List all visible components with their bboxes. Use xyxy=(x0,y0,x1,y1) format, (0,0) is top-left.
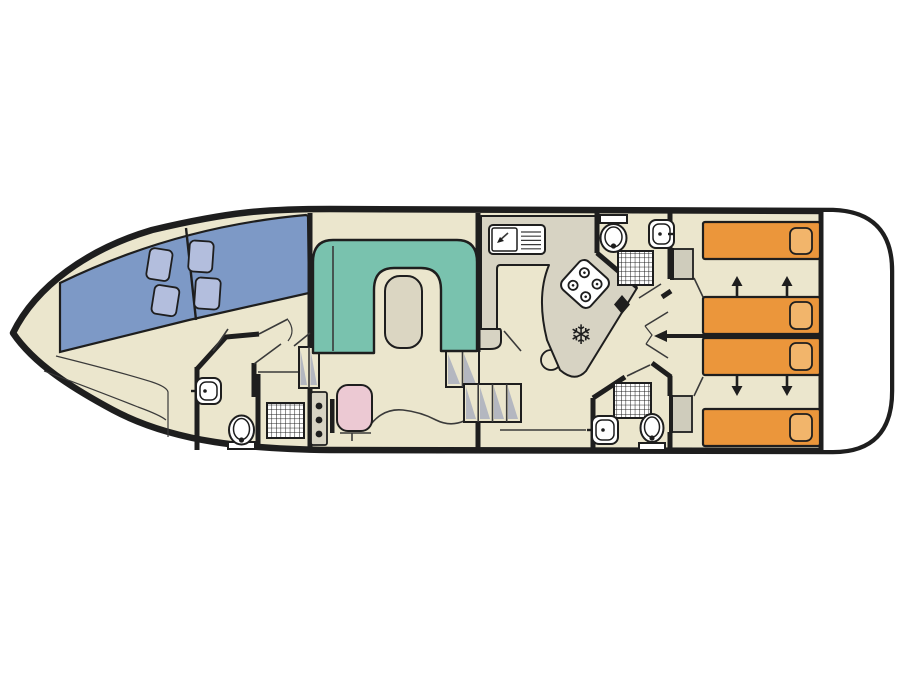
saloon-stairs-upper-icon xyxy=(446,351,479,387)
helm-lever xyxy=(330,399,335,433)
pillow xyxy=(146,247,174,281)
pillow xyxy=(151,284,180,317)
aft-toilet-top-icon xyxy=(600,215,627,252)
bed-sliding-lower xyxy=(703,338,820,375)
galley-sink-icon xyxy=(489,225,545,254)
bed-pillow xyxy=(790,302,812,329)
floor-plan-image: ❄ xyxy=(0,0,901,676)
wardrobe-bottom xyxy=(671,395,692,433)
bed-pillow xyxy=(790,414,812,441)
aft-toilet-bottom-icon xyxy=(639,414,665,450)
pillow xyxy=(188,240,214,273)
fore-shower-grid-icon xyxy=(267,403,304,438)
bed-single-bottom xyxy=(703,409,820,446)
aft-shower-top-grid-icon xyxy=(618,251,653,285)
stern-deck xyxy=(821,212,890,450)
pillow xyxy=(194,277,221,310)
bed-pillow xyxy=(790,228,812,254)
fore-toilet-icon xyxy=(228,416,255,450)
wardrobe-top xyxy=(672,248,693,280)
counter-end xyxy=(479,329,501,349)
aft-washbasin-top-icon xyxy=(649,220,674,248)
aft-shower-bottom-grid-icon xyxy=(614,383,651,418)
bed-single-top xyxy=(703,222,820,259)
saloon xyxy=(313,240,477,353)
helm-seat xyxy=(337,385,372,431)
aft-washbasin-bottom-icon xyxy=(587,416,618,444)
fridge-snowflake-icon: ❄ xyxy=(570,320,593,351)
saloon-stairs-lower-icon xyxy=(464,384,521,422)
dinette-table xyxy=(385,276,422,348)
bed-pillow xyxy=(790,343,812,370)
bed-sliding-upper xyxy=(703,297,820,334)
